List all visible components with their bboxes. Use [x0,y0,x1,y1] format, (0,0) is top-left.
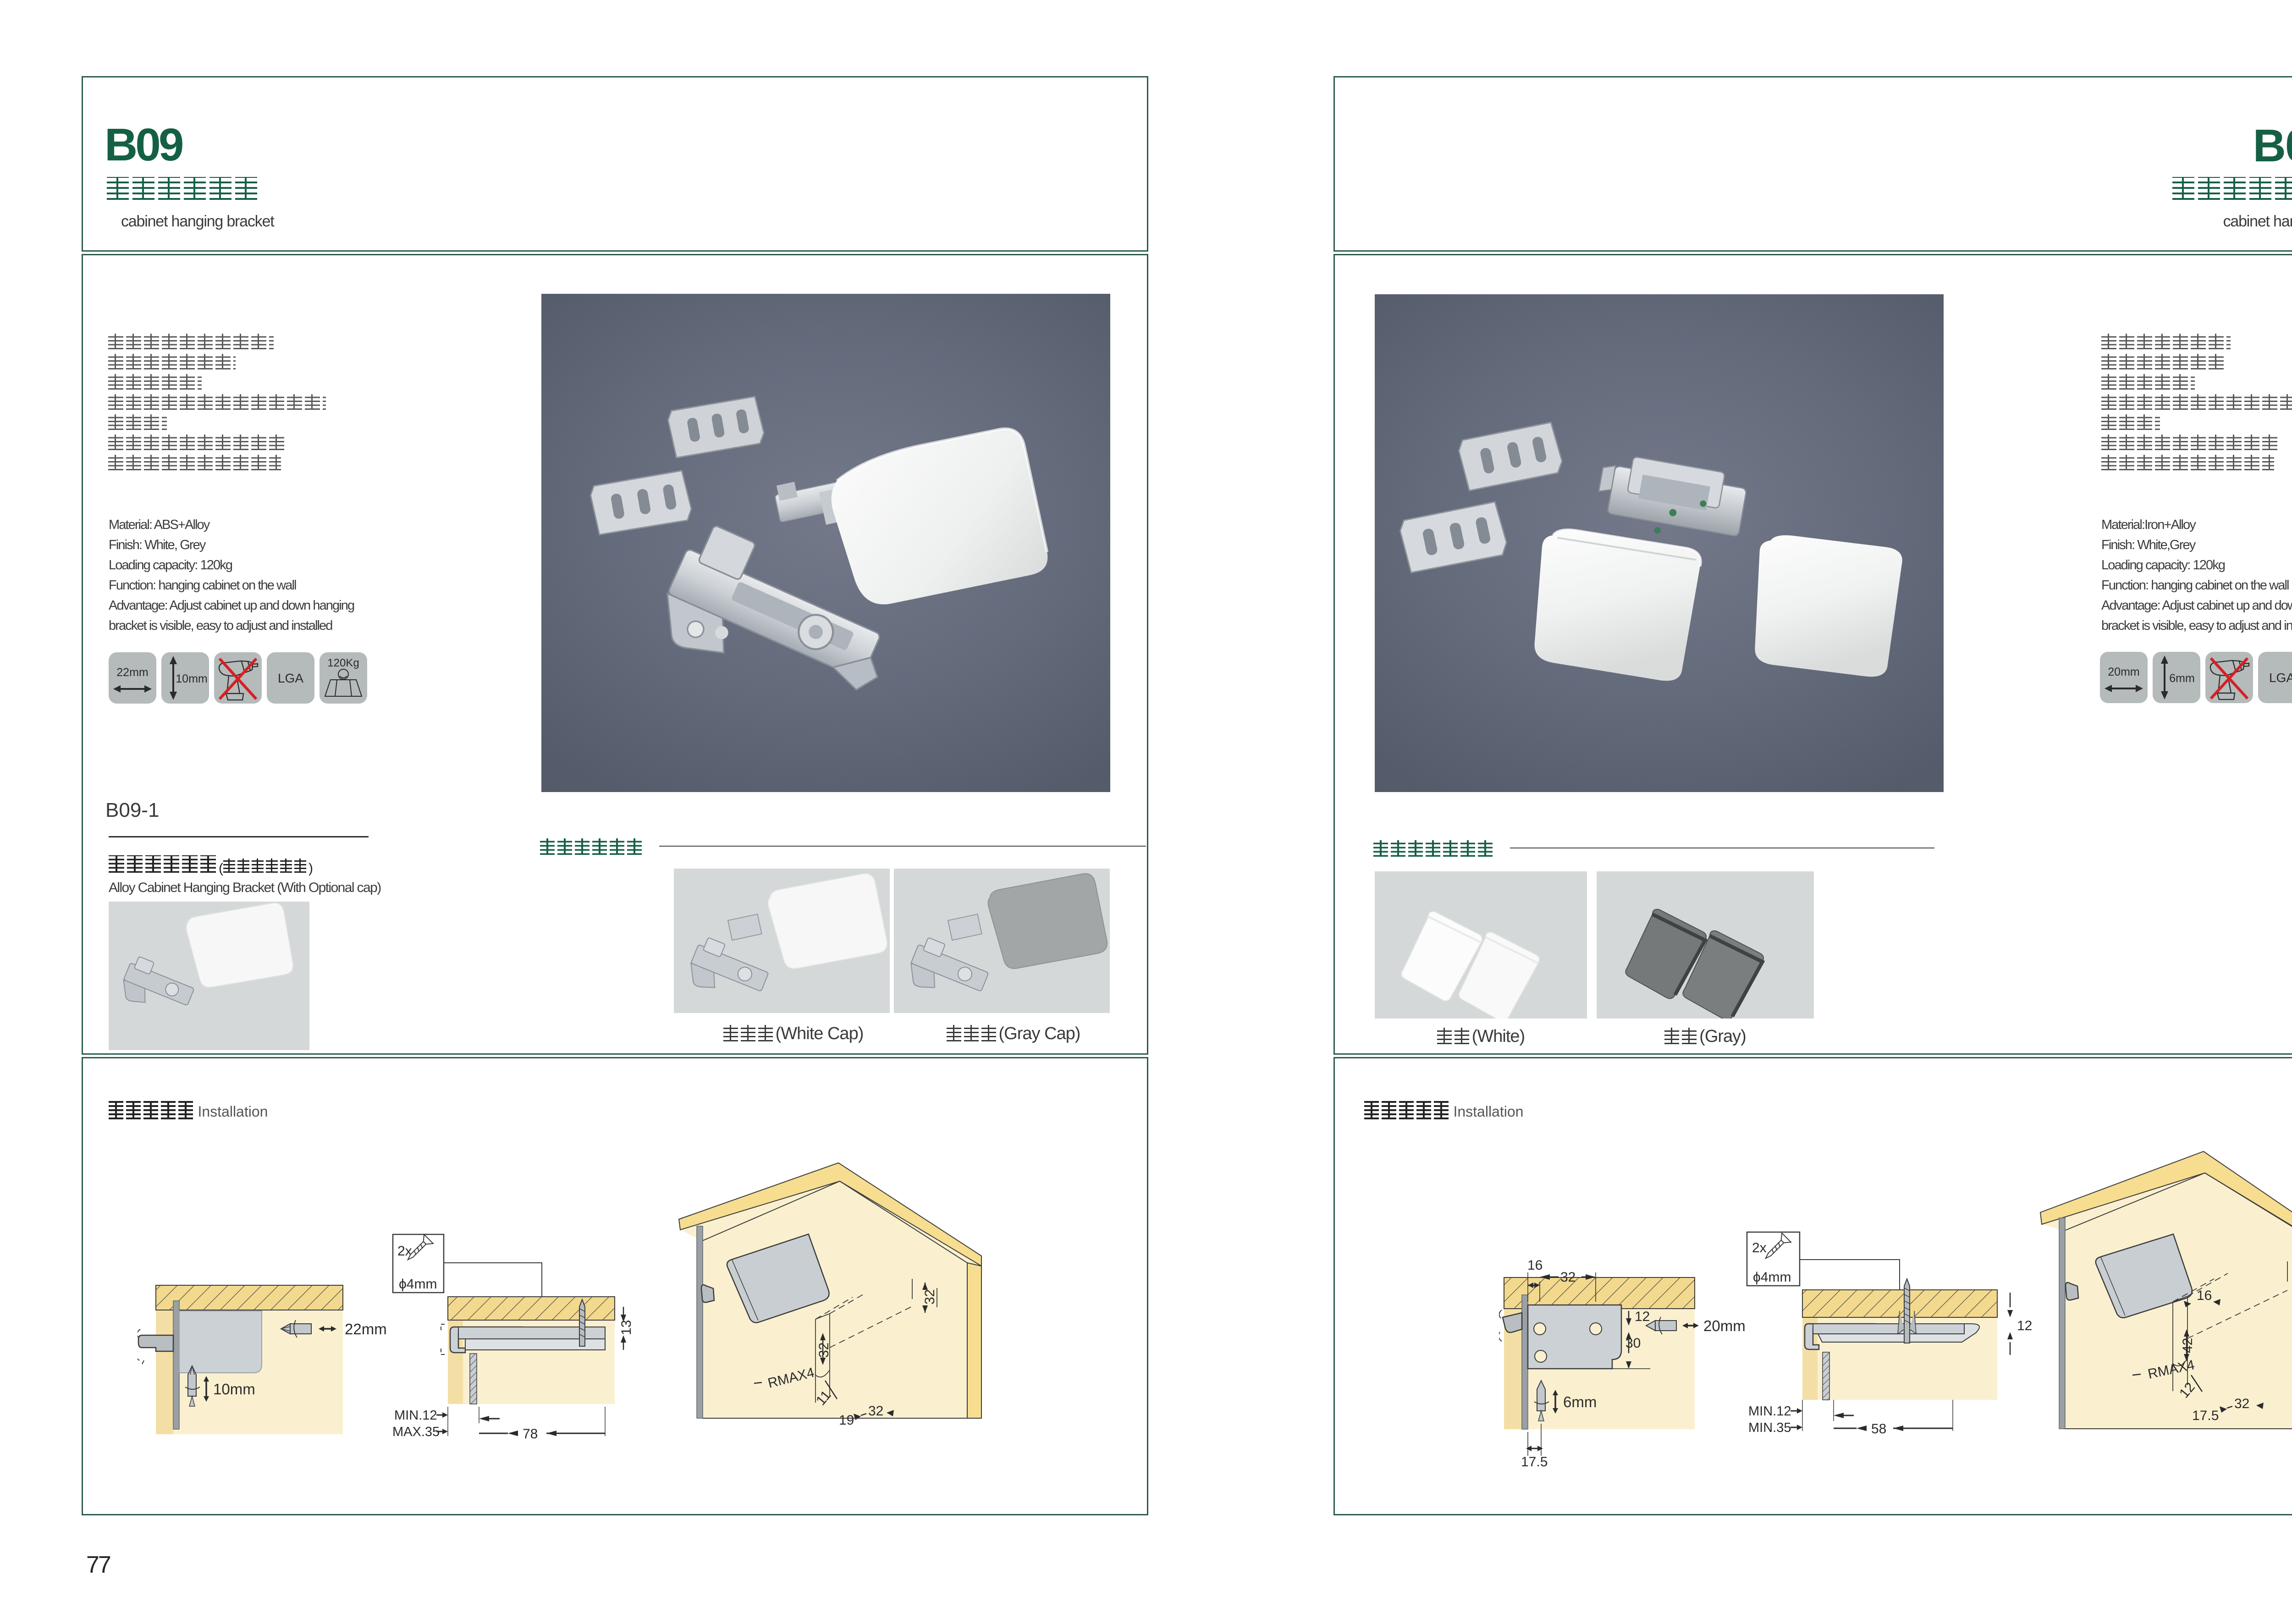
svg-text:2x: 2x [1752,1240,1767,1255]
svg-text:10mm: 10mm [213,1381,255,1398]
svg-text:12: 12 [2017,1318,2032,1333]
svg-text:58: 58 [1871,1421,1886,1437]
svg-text:32: 32 [922,1289,937,1305]
svg-text:32: 32 [2234,1396,2249,1411]
svg-text:MIN.12: MIN.12 [1748,1404,1791,1419]
svg-text:19: 19 [839,1413,854,1428]
svg-text:16: 16 [1527,1258,1543,1273]
svg-text:6mm: 6mm [1563,1393,1597,1410]
svg-text:LGA: LGA [278,671,303,685]
svg-text:20mm: 20mm [1703,1317,1746,1334]
svg-text:MIN.12: MIN.12 [394,1408,437,1423]
svg-text:16: 16 [2197,1288,2212,1303]
svg-text:17.5: 17.5 [1521,1454,1548,1467]
svg-text:42: 42 [2180,1338,2195,1353]
svg-text:32: 32 [816,1343,832,1358]
svg-text:ϕ4mm: ϕ4mm [399,1277,437,1292]
svg-text:17.5: 17.5 [2192,1408,2219,1423]
svg-text:6mm: 6mm [2169,672,2195,685]
svg-text:10mm: 10mm [176,672,207,685]
svg-text:MAX.35: MAX.35 [392,1425,440,1439]
svg-text:120Kg: 120Kg [327,657,359,669]
svg-text:22mm: 22mm [116,666,148,679]
svg-text:32: 32 [868,1404,883,1419]
svg-text:20mm: 20mm [2108,666,2139,678]
svg-text:22mm: 22mm [345,1321,387,1338]
svg-text:32: 32 [1560,1270,1576,1285]
svg-text:MIN.35: MIN.35 [1748,1420,1791,1435]
svg-text:LGA: LGA [2269,671,2292,685]
svg-text:30: 30 [1625,1336,1641,1351]
svg-text:12: 12 [1635,1309,1650,1324]
svg-text:ϕ4mm: ϕ4mm [1753,1270,1791,1285]
svg-text:78: 78 [523,1426,538,1442]
svg-text:13: 13 [619,1320,634,1335]
